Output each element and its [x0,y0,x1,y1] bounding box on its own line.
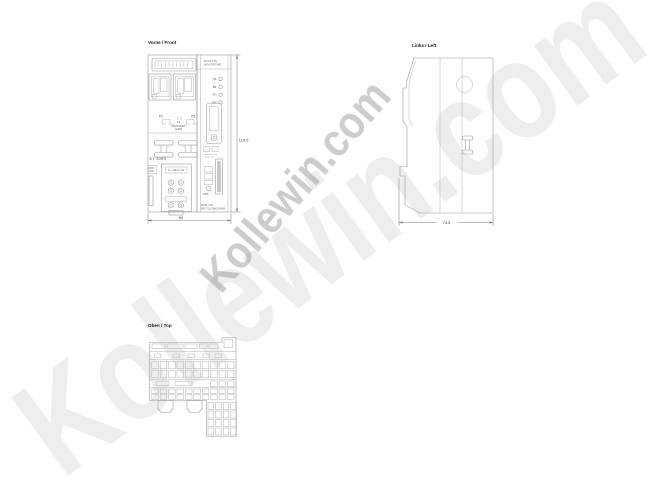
mac-label-box: MAC ADD [148,166,157,174]
mmc-slot [216,159,223,194]
terminal-block: 1L+ 1M 2L+ 2M [162,164,192,215]
left-view-title: Links / Left [412,43,437,48]
type-line2: HIGH FEATURE [204,64,221,67]
front-slot [207,104,222,144]
mac-line1: MAC [149,167,154,170]
terminal-header: 1L+ 1M 2L+ 2M [168,170,184,172]
order-line2: 6ES7 151-3BA23-0AB0 [201,208,226,211]
port2-label: P2 [191,115,195,119]
type-line1: IM 151-3 PN [204,61,217,63]
dip-switches [204,147,219,158]
front-port2 [173,74,195,100]
led-on [219,93,222,96]
front-port1 [149,74,171,100]
dim-width-value: 60 [179,215,184,220]
top-view-title: Oben / Top [148,323,172,328]
technical-drawing-svg: Kollewin.com Vorne / Front [0,0,650,489]
diagram-canvas: Kollewin.com Vorne / Front [0,0,650,489]
led-bf [219,85,222,88]
front-view: Vorne / Front P1 P2 [148,40,249,224]
interface-label: X1 PROFINET (LAN) [171,120,185,131]
led-label-sf: SF [213,77,217,81]
dim-height-value: 119.5 [239,138,249,143]
front-left-bar [149,176,153,206]
front-label-plate [152,59,196,72]
led-sf [219,77,222,80]
mac-line2: ADD [149,170,154,173]
led-column: SF BF ON PW [212,77,222,104]
order-line1: IM151-3 PN [201,205,214,207]
series-label: ET 200S [150,157,167,161]
power-section: PWR [203,167,213,197]
interface-lan: (LAN) [175,127,182,131]
dim-depth-value: 74.5 [443,220,452,225]
slot-ibeams [155,141,198,158]
type-label: IM 151-3 PN HIGH FEATURE [204,61,221,67]
led-label-bf: BF [213,85,217,89]
led-label-on: ON [212,93,216,97]
front-view-title: Vorne / Front [148,40,177,45]
pwr-label: PWR [203,194,209,196]
port1-label: P1 [159,115,163,119]
watermark-large: Kollewin.com [0,0,650,489]
